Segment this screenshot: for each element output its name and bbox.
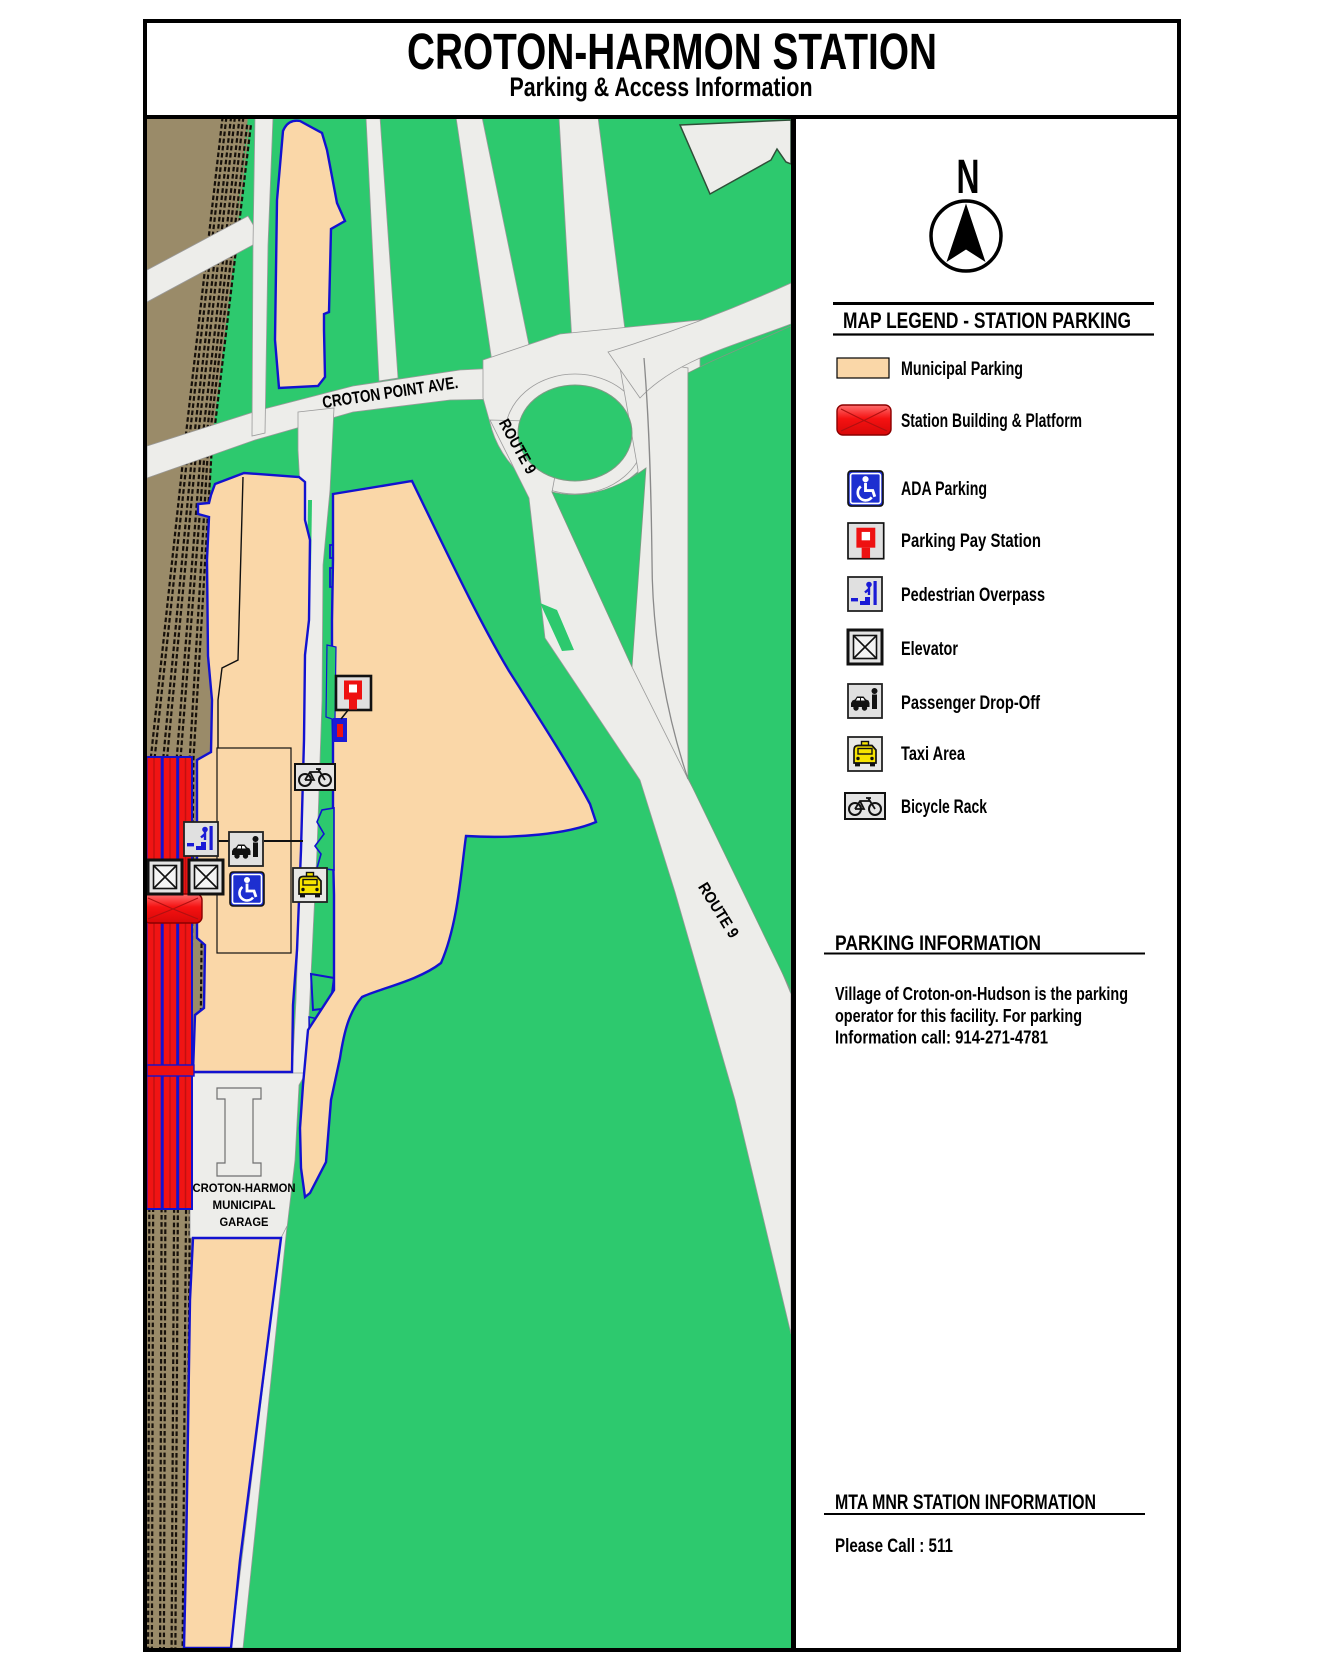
svg-text:ADA Parking: ADA Parking <box>901 479 987 500</box>
svg-text:GARAGE: GARAGE <box>220 1215 269 1229</box>
svg-text:operator for this facility. F: operator for this facility. For parking <box>835 1006 1082 1026</box>
svg-text:PARKING INFORMATION: PARKING INFORMATION <box>835 931 1041 955</box>
svg-text:CROTON-HARMON: CROTON-HARMON <box>193 1181 296 1195</box>
svg-text:MTA MNR STATION INFORMATION: MTA MNR STATION INFORMATION <box>835 1490 1096 1514</box>
svg-text:Parking & Access Information: Parking & Access Information <box>510 72 813 102</box>
svg-text:Please Call : 511: Please Call : 511 <box>835 1536 953 1557</box>
svg-text:Information call: 914-271-478: Information call: 914-271-4781 <box>835 1028 1048 1048</box>
svg-text:N: N <box>957 151 980 204</box>
svg-text:Municipal Parking: Municipal Parking <box>901 359 1023 380</box>
svg-text:Station Building & Platform: Station Building & Platform <box>901 411 1082 432</box>
svg-text:MUNICIPAL: MUNICIPAL <box>213 1198 276 1212</box>
svg-text:Elevator: Elevator <box>901 639 958 660</box>
svg-text:Pedestrian Overpass: Pedestrian Overpass <box>901 585 1045 606</box>
svg-text:Passenger Drop-Off: Passenger Drop-Off <box>901 693 1041 714</box>
svg-text:Bicycle Rack: Bicycle Rack <box>901 797 987 818</box>
svg-text:MAP LEGEND - STATION PARKING: MAP LEGEND - STATION PARKING <box>843 308 1131 333</box>
svg-text:Parking Pay Station: Parking Pay Station <box>901 531 1041 552</box>
svg-text:Village of Croton-on-Hudson is: Village of Croton-on-Hudson is the parki… <box>835 984 1128 1004</box>
svg-text:Taxi Area: Taxi Area <box>901 744 965 765</box>
